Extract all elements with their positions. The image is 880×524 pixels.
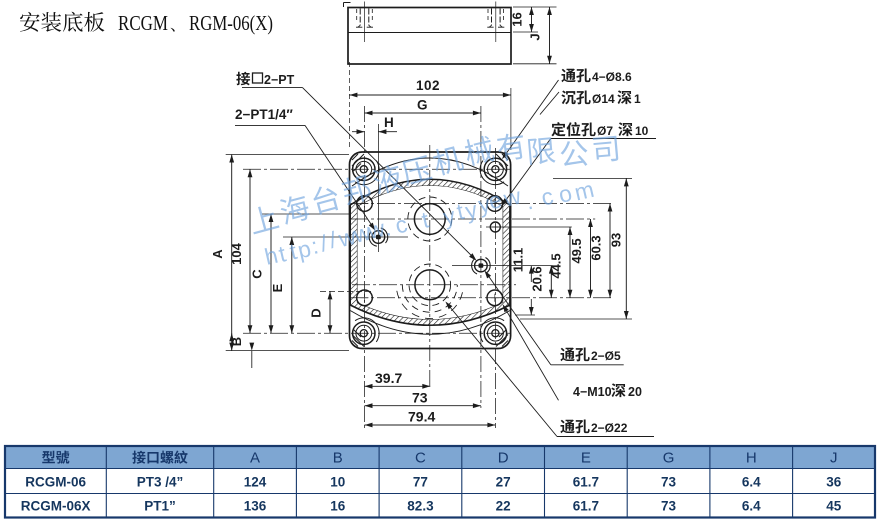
svg-text:G: G bbox=[663, 450, 675, 467]
svg-text:16: 16 bbox=[330, 499, 346, 514]
svg-text:39.7: 39.7 bbox=[375, 370, 402, 386]
svg-text:93: 93 bbox=[609, 233, 624, 247]
svg-text:61.7: 61.7 bbox=[573, 475, 599, 490]
svg-text:1: 1 bbox=[634, 92, 641, 106]
svg-text:73: 73 bbox=[661, 475, 677, 490]
svg-text:H: H bbox=[384, 115, 394, 130]
svg-text:2−PT1/4″: 2−PT1/4″ bbox=[235, 107, 293, 122]
svg-text:D: D bbox=[309, 308, 324, 317]
svg-text:A: A bbox=[210, 249, 225, 259]
svg-text:45: 45 bbox=[826, 499, 842, 514]
svg-text:D: D bbox=[498, 450, 509, 467]
svg-text:RCGM: RCGM bbox=[118, 11, 168, 35]
svg-text:E: E bbox=[270, 283, 285, 292]
svg-text:20.6: 20.6 bbox=[530, 266, 545, 291]
svg-text:2−Ø5: 2−Ø5 bbox=[591, 349, 621, 363]
svg-text:60.3: 60.3 bbox=[589, 235, 604, 260]
svg-text:J: J bbox=[528, 33, 543, 40]
svg-text:49.5: 49.5 bbox=[569, 238, 584, 263]
svg-text:77: 77 bbox=[413, 475, 428, 490]
svg-text:136: 136 bbox=[244, 499, 267, 514]
svg-text:124: 124 bbox=[244, 475, 267, 490]
svg-text:36: 36 bbox=[826, 475, 842, 490]
svg-text:4−M10: 4−M10 bbox=[573, 385, 612, 399]
svg-text:Ø14: Ø14 bbox=[592, 92, 615, 106]
svg-text:PT1”: PT1” bbox=[144, 499, 176, 514]
svg-text:G: G bbox=[417, 98, 428, 113]
svg-text:104: 104 bbox=[229, 242, 244, 264]
svg-text:C: C bbox=[250, 269, 265, 279]
svg-text:73: 73 bbox=[661, 499, 677, 514]
svg-text:A: A bbox=[250, 450, 260, 467]
svg-text:B: B bbox=[229, 337, 244, 346]
svg-text:RGM-06(X): RGM-06(X) bbox=[189, 11, 273, 35]
svg-text:J: J bbox=[830, 450, 838, 467]
svg-text:79.4: 79.4 bbox=[408, 409, 435, 425]
svg-text:Ø7: Ø7 bbox=[597, 124, 613, 138]
svg-text:102: 102 bbox=[416, 78, 440, 93]
svg-text:10: 10 bbox=[330, 475, 345, 490]
svg-text:RCGM-06X: RCGM-06X bbox=[21, 499, 91, 514]
svg-text:11.1: 11.1 bbox=[511, 248, 526, 273]
svg-text:E: E bbox=[581, 450, 591, 467]
svg-text:2−PT: 2−PT bbox=[264, 73, 295, 87]
svg-text:22: 22 bbox=[496, 499, 511, 514]
svg-text:PT3 /4”: PT3 /4” bbox=[137, 475, 184, 490]
svg-text:4−Ø8.6: 4−Ø8.6 bbox=[592, 70, 632, 84]
svg-text:RCGM-06: RCGM-06 bbox=[25, 475, 86, 490]
svg-text:27: 27 bbox=[496, 475, 511, 490]
svg-text:B: B bbox=[333, 450, 343, 467]
svg-text:6.4: 6.4 bbox=[742, 475, 761, 490]
svg-text:C: C bbox=[415, 450, 426, 467]
svg-text:20: 20 bbox=[628, 385, 642, 399]
svg-text:H: H bbox=[746, 450, 757, 467]
svg-text:61.7: 61.7 bbox=[573, 499, 599, 514]
svg-text:2−Ø22: 2−Ø22 bbox=[591, 421, 628, 435]
svg-text:16: 16 bbox=[510, 12, 525, 26]
svg-text:10: 10 bbox=[635, 124, 649, 138]
svg-text:73: 73 bbox=[412, 390, 428, 406]
svg-text:6.4: 6.4 bbox=[742, 499, 761, 514]
svg-text:82.3: 82.3 bbox=[407, 499, 434, 514]
svg-text:44.5: 44.5 bbox=[548, 253, 563, 278]
